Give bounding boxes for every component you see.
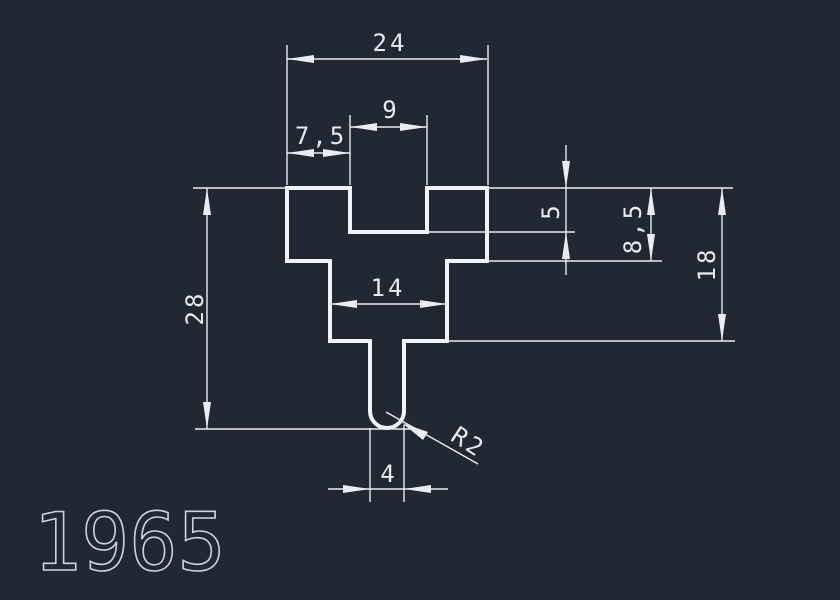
dim-arrowhead-bottom bbox=[718, 314, 726, 341]
profile-outline[interactable] bbox=[287, 188, 487, 428]
dim-arrowhead-left bbox=[330, 300, 357, 308]
dim-arrowhead-right bbox=[460, 55, 487, 63]
dim-arrowhead-left bbox=[287, 149, 314, 157]
dim-arrowhead-left bbox=[287, 55, 314, 63]
dim-arrowhead-bottom bbox=[647, 234, 655, 261]
dim-arrowhead-top bbox=[718, 188, 726, 215]
dim-arrowhead-top bbox=[562, 161, 570, 188]
dim-arrowhead-bottom bbox=[562, 232, 570, 259]
cad-drawing: 24 9 7,5 5 8,5 18 bbox=[0, 0, 840, 600]
leader-arrowhead bbox=[402, 423, 428, 440]
dim-label-overall-height: 28 bbox=[181, 291, 209, 326]
dim-label-slot-depth: 5 bbox=[537, 202, 565, 219]
dim-slot-depth[interactable]: 5 bbox=[429, 145, 575, 275]
dim-arrowhead-top bbox=[203, 188, 211, 215]
dim-arrowhead-right bbox=[323, 149, 350, 157]
dim-label-slot-offset: 7,5 bbox=[295, 122, 347, 150]
dim-label-stem-width: 4 bbox=[380, 460, 397, 488]
dim-arrowhead-bottom bbox=[203, 402, 211, 429]
dim-label-body-height: 18 bbox=[693, 247, 721, 282]
dim-overall-height[interactable]: 28 bbox=[181, 188, 410, 429]
dim-waist-width[interactable]: 14 bbox=[330, 274, 447, 308]
part-number-text[interactable]: 1965 bbox=[33, 496, 226, 589]
dim-label-slot-width: 9 bbox=[382, 96, 399, 124]
dim-arrowhead-left bbox=[343, 485, 370, 493]
dim-slot-offset[interactable]: 7,5 bbox=[287, 122, 350, 157]
dim-label-stem-radius: R2 bbox=[446, 421, 491, 463]
dim-arrowhead-left bbox=[350, 123, 377, 131]
dim-arrowhead-right bbox=[420, 300, 447, 308]
dim-arrowhead-top bbox=[647, 188, 655, 215]
dim-label-waist-width: 14 bbox=[371, 274, 406, 302]
dim-step-depth[interactable]: 8,5 bbox=[489, 188, 662, 261]
dim-label-top-width: 24 bbox=[373, 29, 408, 57]
cad-drawing-canvas[interactable]: 24 9 7,5 5 8,5 18 bbox=[0, 0, 840, 600]
dim-arrowhead-right bbox=[400, 123, 427, 131]
dim-label-step-depth: 8,5 bbox=[619, 202, 647, 254]
dim-arrowhead-right bbox=[404, 485, 431, 493]
dim-body-height[interactable]: 18 bbox=[449, 188, 735, 341]
dim-slot-width[interactable]: 9 bbox=[350, 96, 427, 185]
